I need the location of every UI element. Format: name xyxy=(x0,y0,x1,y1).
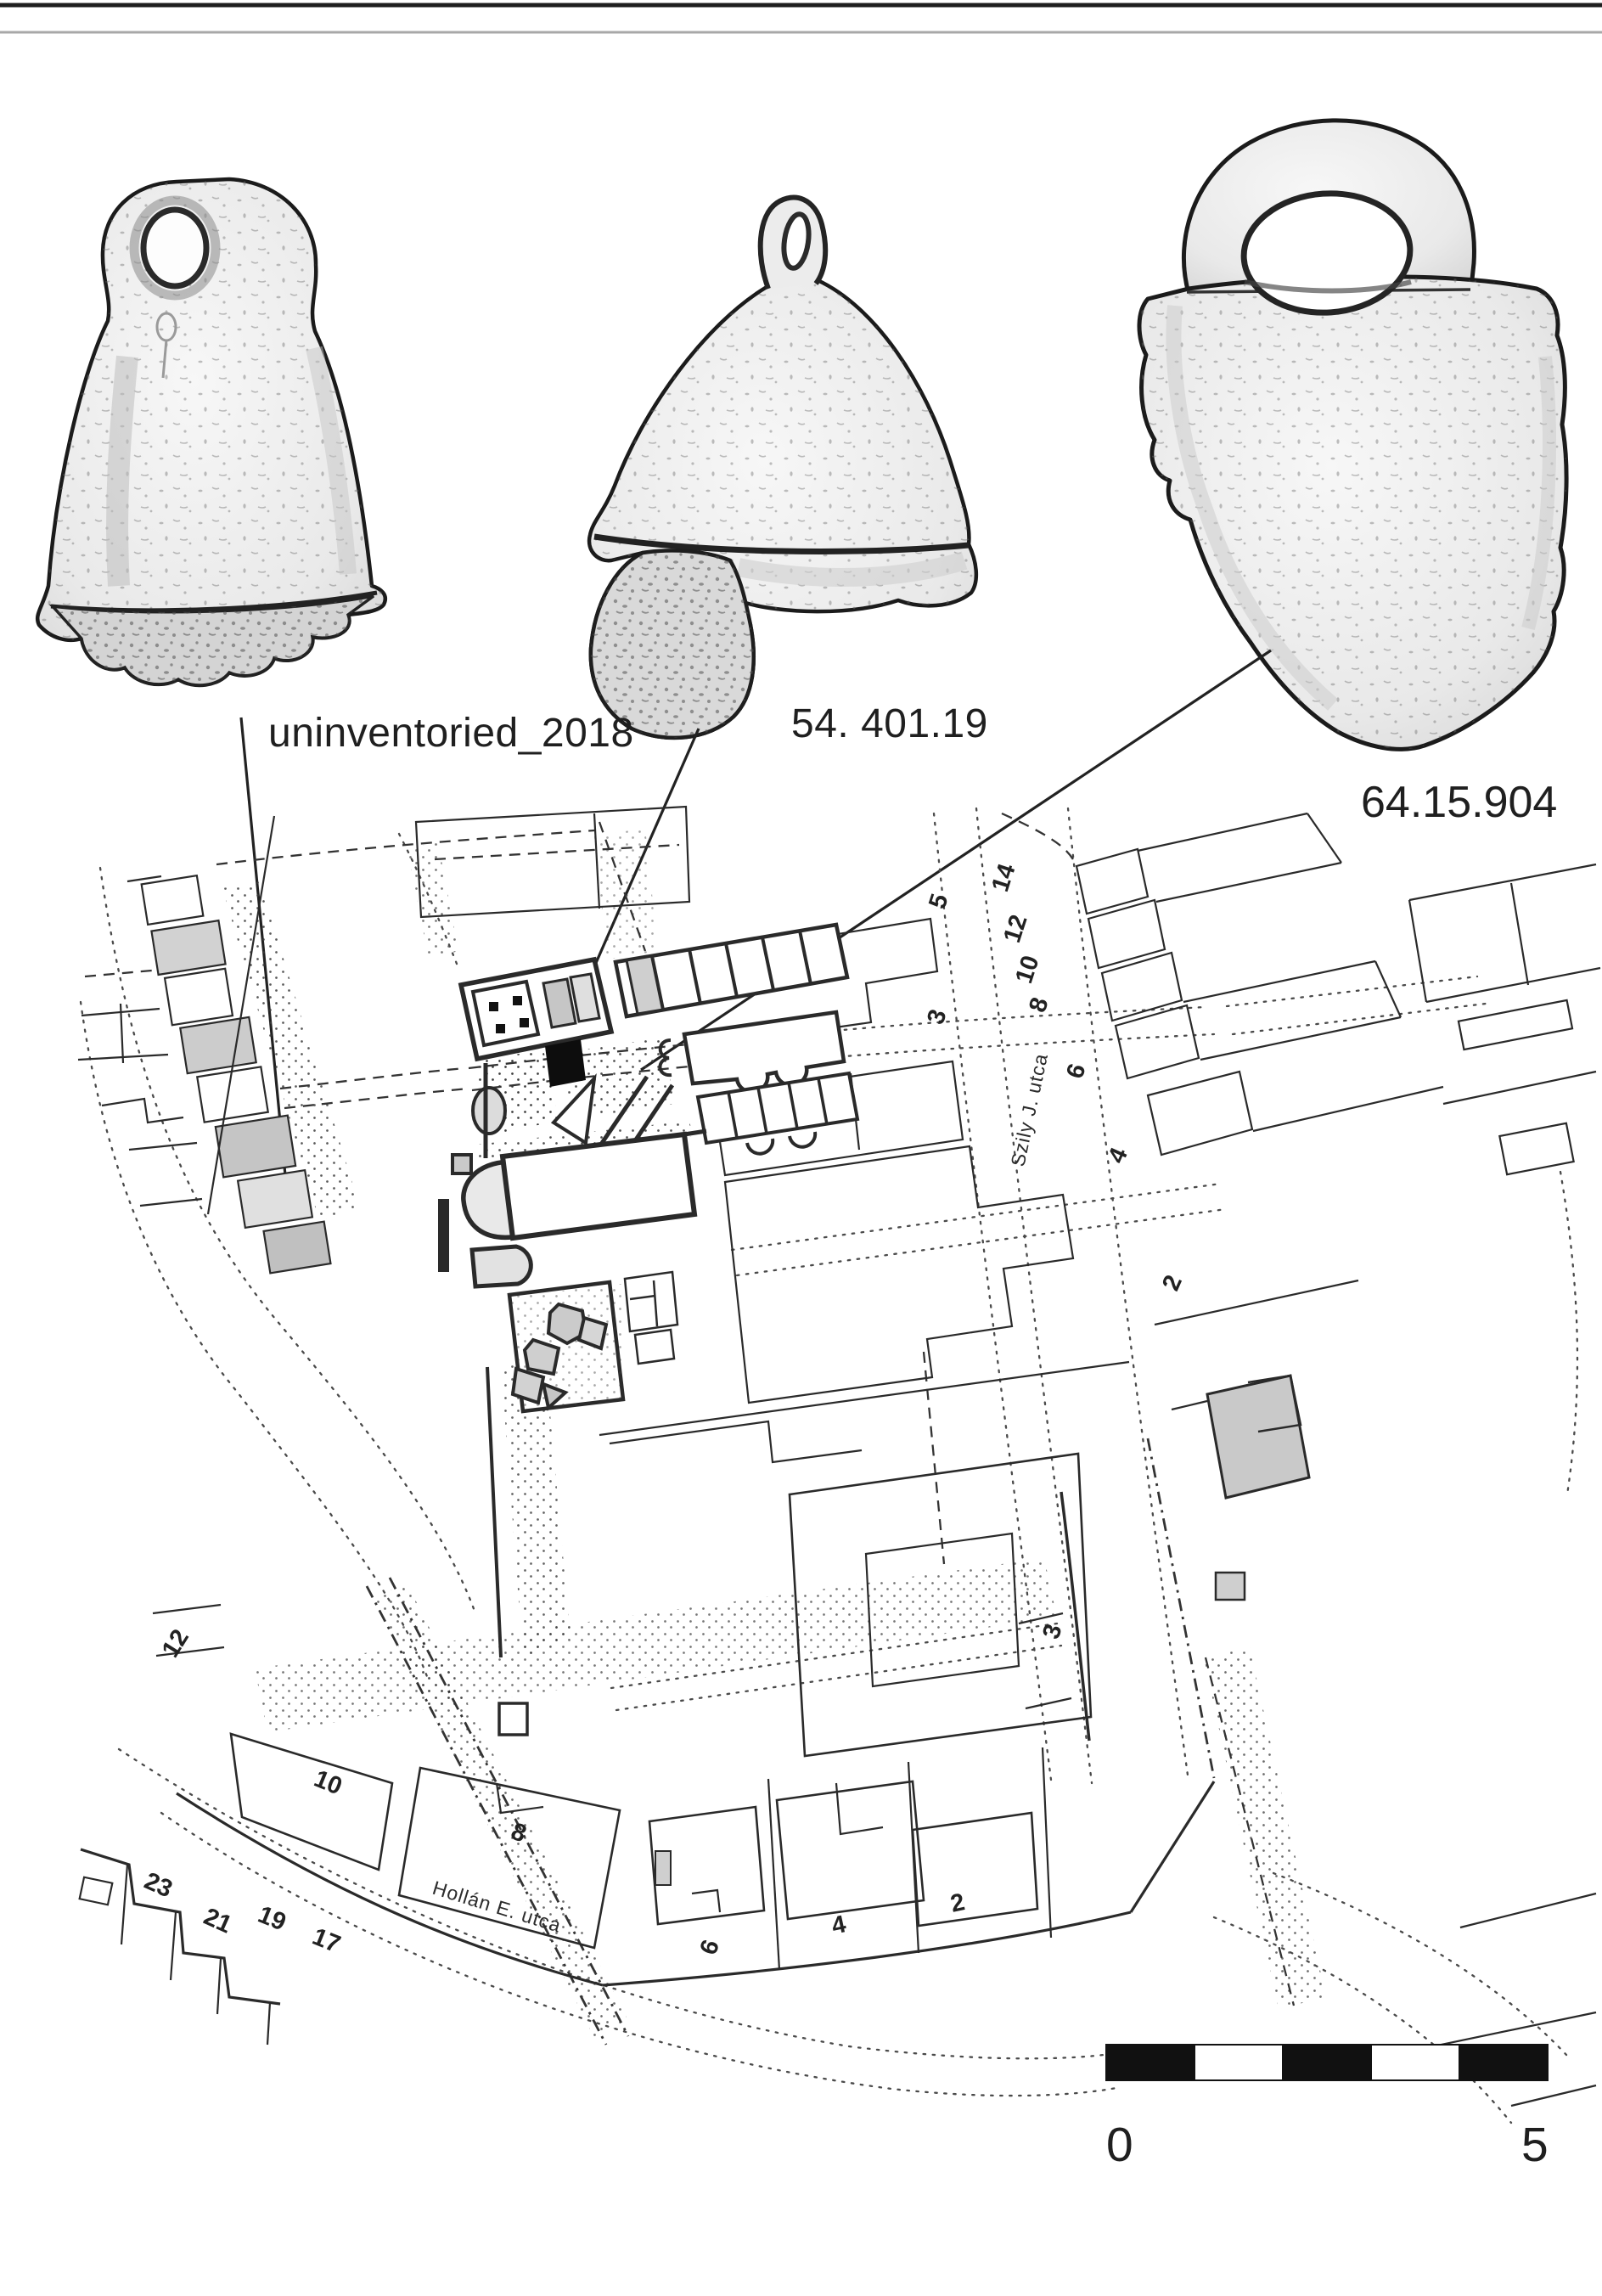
house-number-17: 17 xyxy=(308,1923,344,1959)
scale-segment-4 xyxy=(1371,2045,1459,2080)
artifact-bell-small xyxy=(37,179,385,685)
scale-bar: 0 5 xyxy=(1106,2045,1549,2172)
house-number-10: 10 xyxy=(1010,953,1044,988)
artifact-bell-fragment xyxy=(1139,121,1566,750)
house-number-2: 2 xyxy=(1157,1271,1188,1295)
house-number-12: 12 xyxy=(998,912,1032,947)
house-number-4: 4 xyxy=(1103,1144,1133,1168)
scale-segment-3 xyxy=(1283,2045,1371,2080)
map-dotted-streets xyxy=(81,808,1577,2123)
artifact-bell-conical xyxy=(589,198,976,738)
site-map: Szily J. utca Hollán E. utca 14 12 10 8 … xyxy=(78,807,1600,2123)
excavation-dark-bar xyxy=(438,1199,449,1272)
scale-label-five: 5 xyxy=(1521,2118,1549,2172)
house-number-west-12: 12 xyxy=(157,1624,194,1662)
scale-segment-5 xyxy=(1459,2045,1548,2080)
house-number-8: 8 xyxy=(1024,994,1054,1016)
label-uninventoried: uninventoried_2018 xyxy=(268,711,634,756)
scale-segment-2 xyxy=(1194,2045,1283,2080)
house-number-14: 14 xyxy=(986,861,1020,896)
label-64-15-904: 64.15.904 xyxy=(1361,778,1557,827)
house-number-south-2: 2 xyxy=(948,1888,967,1918)
house-number-west-5: 5 xyxy=(924,891,953,912)
street-label-szily: Szily J. utca xyxy=(1006,1051,1052,1168)
bell-small-loop-hole xyxy=(143,210,206,286)
scale-segment-1 xyxy=(1106,2045,1194,2080)
scale-label-zero: 0 xyxy=(1106,2118,1133,2172)
map-east-parcels xyxy=(1019,813,1600,2106)
house-number-21: 21 xyxy=(200,1903,235,1939)
excavation-dark-feature xyxy=(545,1039,586,1087)
figure-canvas: uninventoried_2018 54. 401.19 64.15.904 xyxy=(0,0,1602,2296)
house-number-hollan-10: 10 xyxy=(310,1765,346,1801)
map-excavation xyxy=(438,925,857,1657)
label-54-401-19: 54. 401.19 xyxy=(791,701,988,746)
house-number-23: 23 xyxy=(140,1867,176,1903)
house-number-west-3b: 3 xyxy=(1037,1621,1067,1642)
page-top-rules xyxy=(0,5,1602,32)
house-number-6: 6 xyxy=(1061,1061,1091,1082)
house-number-west-3: 3 xyxy=(922,1006,952,1027)
bell-small-shade-left xyxy=(117,357,127,586)
house-number-south-4: 4 xyxy=(829,1911,848,1940)
house-number-south-6: 6 xyxy=(695,1936,726,1958)
house-number-19: 19 xyxy=(254,1901,289,1937)
bell-conical-flap-texture xyxy=(591,550,754,737)
